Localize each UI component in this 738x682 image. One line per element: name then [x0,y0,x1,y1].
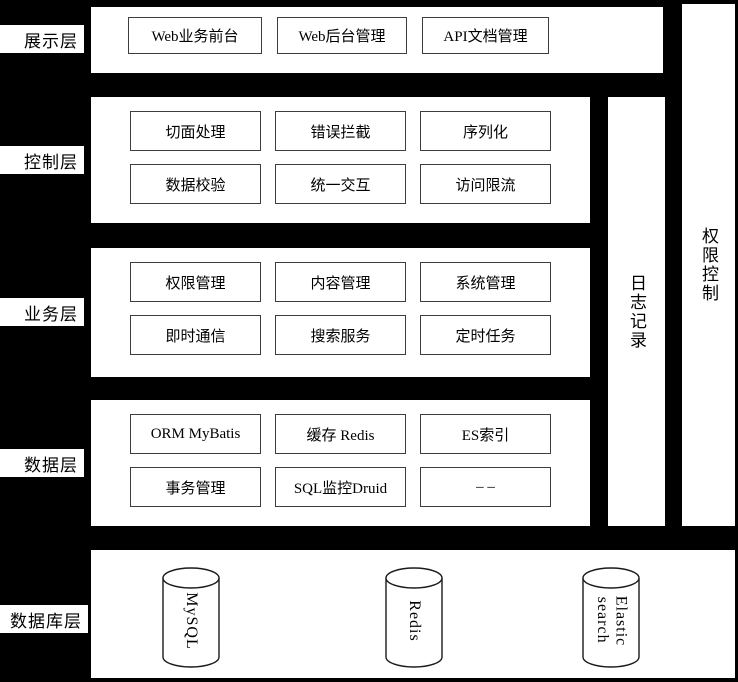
panel-business-layer: 权限管理 内容管理 系统管理 即时通信 搜索服务 定时任务 [91,248,590,377]
column-permission-label: 权限控制 [700,227,717,303]
business-box-grid: 权限管理 内容管理 系统管理 即时通信 搜索服务 定时任务 [130,262,551,355]
module-box-unified-interaction: 统一交互 [275,164,406,204]
module-box-rate-limit: 访问限流 [420,164,551,204]
column-permission-control: 权限控制 [682,4,735,526]
module-box-transaction-mgmt: 事务管理 [130,467,261,507]
panel-control-layer: 切面处理 错误拦截 序列化 数据校验 统一交互 访问限流 [91,97,590,223]
module-box-serialization: 序列化 [420,111,551,151]
cylinder-label-redis: Redis [405,600,423,641]
module-box-placeholder: – – [420,467,551,507]
module-box-api-docs: API文档管理 [422,17,549,54]
panel-database-layer: MySQL Redis Elastic search [91,550,735,678]
module-box-orm-mybatis: ORM MyBatis [130,414,261,454]
module-box-permission-mgmt: 权限管理 [130,262,261,302]
panel-presentation-layer: Web业务前台 Web后台管理 API文档管理 [91,7,663,73]
layer-label-business: 业务层 [0,298,84,326]
module-box-es-index: ES索引 [420,414,551,454]
cylinder-label-mysql: MySQL [182,592,200,649]
module-box-instant-messaging: 即时通信 [130,315,261,355]
control-box-grid: 切面处理 错误拦截 序列化 数据校验 统一交互 访问限流 [130,111,551,204]
module-box-web-admin: Web后台管理 [277,17,407,54]
module-box-cache-redis: 缓存 Redis [275,414,406,454]
database-cylinder-mysql: MySQL [162,567,220,668]
database-cylinder-elasticsearch: Elastic search [582,567,640,668]
layer-label-control: 控制层 [0,146,84,174]
module-box-web-frontend: Web业务前台 [128,17,262,54]
data-box-grid: ORM MyBatis 缓存 Redis ES索引 事务管理 SQL监控Drui… [130,414,551,507]
panel-data-layer: ORM MyBatis 缓存 Redis ES索引 事务管理 SQL监控Drui… [91,400,590,526]
module-box-aspect: 切面处理 [130,111,261,151]
module-box-data-validation: 数据校验 [130,164,261,204]
architecture-diagram: 展示层 控制层 业务层 数据层 数据库层 Web业务前台 Web后台管理 API… [0,0,738,682]
layer-label-data: 数据层 [0,449,84,477]
module-box-error-intercept: 错误拦截 [275,111,406,151]
module-box-sql-monitor-druid: SQL监控Druid [275,467,406,507]
column-log-label: 日志记录 [628,274,645,350]
layer-label-presentation: 展示层 [0,25,84,53]
layer-label-database: 数据库层 [0,605,88,633]
column-log-recording: 日志记录 [608,97,665,526]
module-box-content-mgmt: 内容管理 [275,262,406,302]
module-box-search-service: 搜索服务 [275,315,406,355]
presentation-box-grid: Web业务前台 Web后台管理 API文档管理 [128,17,549,54]
cylinder-label-elasticsearch: Elastic search [593,595,630,646]
module-box-system-mgmt: 系统管理 [420,262,551,302]
database-cylinder-redis: Redis [385,567,443,668]
module-box-scheduled-tasks: 定时任务 [420,315,551,355]
